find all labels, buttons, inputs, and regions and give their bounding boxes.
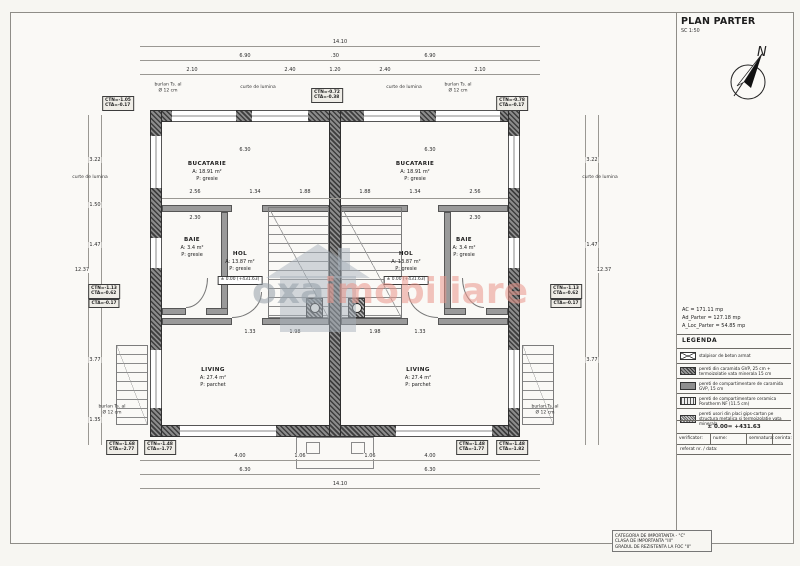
level-mark-line: CTA=-1.82 bbox=[499, 447, 525, 452]
dimension-line bbox=[140, 488, 540, 489]
dimension-label: 1.33 bbox=[243, 329, 256, 335]
level-mark-line: CTA=-0.17 bbox=[553, 301, 578, 306]
dimension-label: 3.77 bbox=[585, 357, 598, 363]
dimension-label: 2.56 bbox=[188, 189, 201, 195]
room-floor-finish: P: gresie bbox=[180, 252, 203, 260]
annotation: curte de lumina bbox=[582, 175, 618, 181]
room-label: BUCATARIEA: 18.91 m²P: gresie bbox=[396, 160, 434, 184]
note-line: GRADUL DE REZISTENTA LA FOC "II" bbox=[615, 544, 709, 550]
dimension-label: 1.47 bbox=[88, 242, 101, 248]
interior-wall bbox=[162, 318, 232, 325]
annotation: curte de lumina bbox=[386, 85, 422, 91]
plan-scale: SC 1:50 bbox=[681, 29, 700, 34]
drawing-sheet: 14.106.90.306.902.102.401.202.402.106.30… bbox=[0, 0, 800, 566]
level-mark: CTN=-1.48CTA=-1.77 bbox=[456, 440, 488, 455]
level-mark: CTN=-1.05CTA=-0.17 bbox=[102, 96, 134, 111]
window-opening bbox=[508, 238, 520, 268]
level-mark: CTA=-0.17 bbox=[550, 299, 581, 308]
room-name: BAIE bbox=[452, 236, 475, 245]
annotation: burlan Ts. al Ø 12 cm bbox=[154, 82, 181, 93]
porch-outline bbox=[306, 442, 320, 454]
room-area: A: 18.91 m² bbox=[188, 169, 226, 177]
legend-row: pereti de compartimentare ceramica Porot… bbox=[677, 393, 791, 408]
dimension-line bbox=[88, 115, 89, 445]
dimension-label: 6.30 bbox=[423, 147, 436, 153]
dimension-label: 14.10 bbox=[332, 39, 348, 45]
level-mark-line: CTA=-0.38 bbox=[314, 95, 340, 100]
dimension-line bbox=[140, 46, 540, 47]
level-reference: ± 0.00= +431.63 bbox=[677, 420, 791, 433]
dimension-label: 1.35 bbox=[88, 417, 101, 423]
north-arrow-icon: N bbox=[721, 42, 779, 108]
level-mark-line: CTA=-0.17 bbox=[105, 103, 131, 108]
level-mark: CTN=-1.68CTA=-2.77 bbox=[106, 440, 138, 455]
legend-row: pereti de compartimentare de caramida GV… bbox=[677, 378, 791, 393]
dimension-label: 3.22 bbox=[585, 157, 598, 163]
dimension-label: 1.50 bbox=[88, 202, 101, 208]
window-opening bbox=[508, 136, 520, 188]
dimension-label: 1.88 bbox=[298, 189, 311, 195]
dimension-label: 1.47 bbox=[585, 242, 598, 248]
watermark-brand-accent: imobiliare bbox=[324, 271, 528, 312]
legend-description: pereti de compartimentare de caramida GV… bbox=[699, 381, 788, 391]
level-mark-line: CTA=-2.77 bbox=[109, 447, 135, 452]
referat-row: referat nr. / data: bbox=[677, 444, 791, 455]
room-area: A: 3.4 m² bbox=[180, 245, 203, 253]
watermark-brand: oxaimobiliare bbox=[252, 274, 528, 310]
window-opening bbox=[150, 350, 162, 408]
level-mark: CTN=-1.13CTA=-0.62 bbox=[550, 284, 582, 299]
level-mark: CTN=-1.13CTA=-0.62 bbox=[88, 284, 120, 299]
dimension-label: .30 bbox=[330, 53, 340, 59]
dimension-label: 6.30 bbox=[238, 467, 251, 473]
dimension-label: 1.20 bbox=[328, 67, 341, 73]
room-label: BAIEA: 3.4 m²P: gresie bbox=[452, 236, 475, 260]
interior-wall bbox=[206, 308, 228, 315]
window-opening bbox=[150, 238, 162, 268]
level-mark-line: CTA=-1.77 bbox=[147, 447, 173, 452]
dimension-label: 1.88 bbox=[358, 189, 371, 195]
room-area: A: 18.91 m² bbox=[396, 169, 434, 177]
room-area: A: 27.4 m² bbox=[200, 375, 226, 383]
dimension-label: 2.40 bbox=[283, 67, 296, 73]
dimension-label: 2.10 bbox=[185, 67, 198, 73]
dimension-label: 3.77 bbox=[88, 357, 101, 363]
interior-wall bbox=[162, 205, 232, 212]
dimension-line bbox=[140, 460, 540, 461]
dimension-line bbox=[598, 115, 599, 445]
room-label: BAIEA: 3.4 m²P: gresie bbox=[180, 236, 203, 260]
room-name: HOL bbox=[384, 250, 429, 259]
dimension-line bbox=[585, 115, 586, 445]
legend-description: pereti din caramida GVP, 25 cm + termoiz… bbox=[699, 366, 788, 376]
annotation: burlan Ts. al Ø 12 cm bbox=[98, 404, 125, 415]
dimension-line bbox=[140, 474, 540, 475]
dimension-label: 12.37 bbox=[596, 267, 612, 273]
area-stat-line: A_Loc_Parter = 54.85 mp bbox=[682, 322, 745, 330]
dimension-line bbox=[140, 74, 540, 75]
dimension-label: 2.56 bbox=[468, 189, 481, 195]
dimension-label: 1.34 bbox=[248, 189, 261, 195]
door-swing-arc bbox=[186, 278, 208, 308]
level-mark-line: CTA=-0.62 bbox=[553, 291, 579, 296]
room-area: A: 13.87 m² bbox=[384, 259, 429, 267]
dimension-label: 2.10 bbox=[473, 67, 486, 73]
window-opening bbox=[364, 110, 420, 122]
section-divider bbox=[677, 334, 791, 335]
brick-wall-hatch-icon bbox=[680, 367, 696, 375]
svg-text:N: N bbox=[757, 45, 767, 60]
room-label: LIVINGA: 27.4 m²P: parchet bbox=[405, 366, 431, 390]
dimension-label: 6.30 bbox=[238, 147, 251, 153]
title-block: PLAN PARTER SC 1:50 N AC = 171.11 mpAd_P… bbox=[677, 12, 791, 542]
partition-wall-hatch-icon bbox=[680, 382, 696, 390]
window-opening bbox=[150, 136, 162, 188]
dimension-line bbox=[101, 115, 102, 445]
level-mark-line: CTA=-0.17 bbox=[91, 301, 116, 306]
dimension-label: 2.30 bbox=[468, 215, 481, 221]
annotation: burlan Ts. al Ø 12 cm bbox=[444, 82, 471, 93]
room-floor-finish: P: parchet bbox=[405, 382, 431, 390]
annotation: burlan Ts. al Ø 12 cm bbox=[531, 404, 558, 415]
dimension-label: 1.33 bbox=[413, 329, 426, 335]
level-mark: CTN=-1.48CTA=-1.77 bbox=[144, 440, 176, 455]
area-stat-line: AC = 171.11 mp bbox=[682, 306, 745, 314]
rc-column-hatch-icon bbox=[680, 352, 696, 360]
room-name: BAIE bbox=[180, 236, 203, 245]
dimension-label: 3.22 bbox=[88, 157, 101, 163]
dimension-label: 1.98 bbox=[368, 329, 381, 335]
area-statistics: AC = 171.11 mpAd_Parter = 127.18 mpA_Loc… bbox=[682, 306, 745, 330]
room-area: A: 3.4 m² bbox=[452, 245, 475, 253]
room-name: LIVING bbox=[200, 366, 226, 375]
room-area: A: 13.87 m² bbox=[218, 259, 263, 267]
level-mark: CTN=-0.78CTA=-0.17 bbox=[496, 96, 528, 111]
dimension-line bbox=[140, 60, 540, 61]
window-opening bbox=[252, 110, 308, 122]
dimension-label: 4.00 bbox=[423, 453, 436, 459]
room-name: BUCATARIE bbox=[396, 160, 434, 169]
window-opening bbox=[436, 110, 500, 122]
dimension-label: 14.10 bbox=[332, 481, 348, 487]
area-stat-line: Ad_Parter = 127.18 mp bbox=[682, 314, 745, 322]
dimension-label: 1.06 bbox=[293, 453, 306, 459]
importance-category-note: CATEGORIA DE IMPORTANTA - "C"CLASA DE IM… bbox=[612, 530, 712, 552]
dimension-label: 6.30 bbox=[423, 467, 436, 473]
legend-description: stalpisor de beton armat bbox=[699, 353, 751, 358]
dimension-label: 1.34 bbox=[408, 189, 421, 195]
level-mark-line: CTA=-0.62 bbox=[91, 291, 117, 296]
room-name: LIVING bbox=[405, 366, 431, 375]
interior-wall bbox=[162, 308, 186, 315]
legend-description: pereti de compartimentare ceramica Porot… bbox=[699, 396, 788, 406]
level-mark: CTN=-0.72CTA=-0.38 bbox=[311, 88, 343, 103]
interior-wall bbox=[438, 205, 508, 212]
room-label: BUCATARIEA: 18.91 m²P: gresie bbox=[188, 160, 226, 184]
window-opening bbox=[172, 110, 236, 122]
room-floor-finish: P: gresie bbox=[396, 176, 434, 184]
dimension-label: 12.37 bbox=[74, 267, 90, 273]
room-name: BUCATARIE bbox=[188, 160, 226, 169]
room-floor-finish: P: gresie bbox=[452, 252, 475, 260]
room-name: HOL bbox=[218, 250, 263, 259]
annotation: curte de lumina bbox=[240, 85, 276, 91]
porotherm-hatch-icon bbox=[680, 397, 696, 405]
level-mark-line: CTA=-0.17 bbox=[499, 103, 525, 108]
level-mark: CTN=-1.48CTA=-1.82 bbox=[496, 440, 528, 455]
room-floor-finish: P: parchet bbox=[200, 382, 226, 390]
legend-title: LEGENDA bbox=[682, 337, 717, 344]
room-label: LIVINGA: 27.4 m²P: parchet bbox=[200, 366, 226, 390]
interior-wall bbox=[438, 318, 508, 325]
dimension-label: 6.90 bbox=[423, 53, 436, 59]
dimension-line bbox=[162, 198, 508, 199]
plan-title: PLAN PARTER bbox=[681, 16, 755, 27]
dimension-label: 2.30 bbox=[188, 215, 201, 221]
dimension-label: 1.06 bbox=[363, 453, 376, 459]
window-opening bbox=[180, 425, 276, 437]
dimension-label: 2.40 bbox=[378, 67, 391, 73]
window-opening bbox=[508, 350, 520, 408]
level-mark-line: CTA=-1.77 bbox=[459, 447, 485, 452]
room-floor-finish: P: gresie bbox=[188, 176, 226, 184]
legend-row: stalpisor de beton armat bbox=[677, 348, 791, 363]
window-opening bbox=[396, 425, 492, 437]
dimension-label: 4.00 bbox=[233, 453, 246, 459]
house-chimney-shape bbox=[338, 248, 350, 270]
legend-list: stalpisor de beton armatpereti din caram… bbox=[677, 348, 791, 428]
annotation: curte de lumina bbox=[72, 175, 108, 181]
room-area: A: 27.4 m² bbox=[405, 375, 431, 383]
watermark-brand-gray: oxa bbox=[252, 271, 324, 312]
dimension-label: 6.90 bbox=[238, 53, 251, 59]
level-mark: CTA=-0.17 bbox=[88, 299, 119, 308]
legend-row: pereti din caramida GVP, 25 cm + termoiz… bbox=[677, 363, 791, 378]
